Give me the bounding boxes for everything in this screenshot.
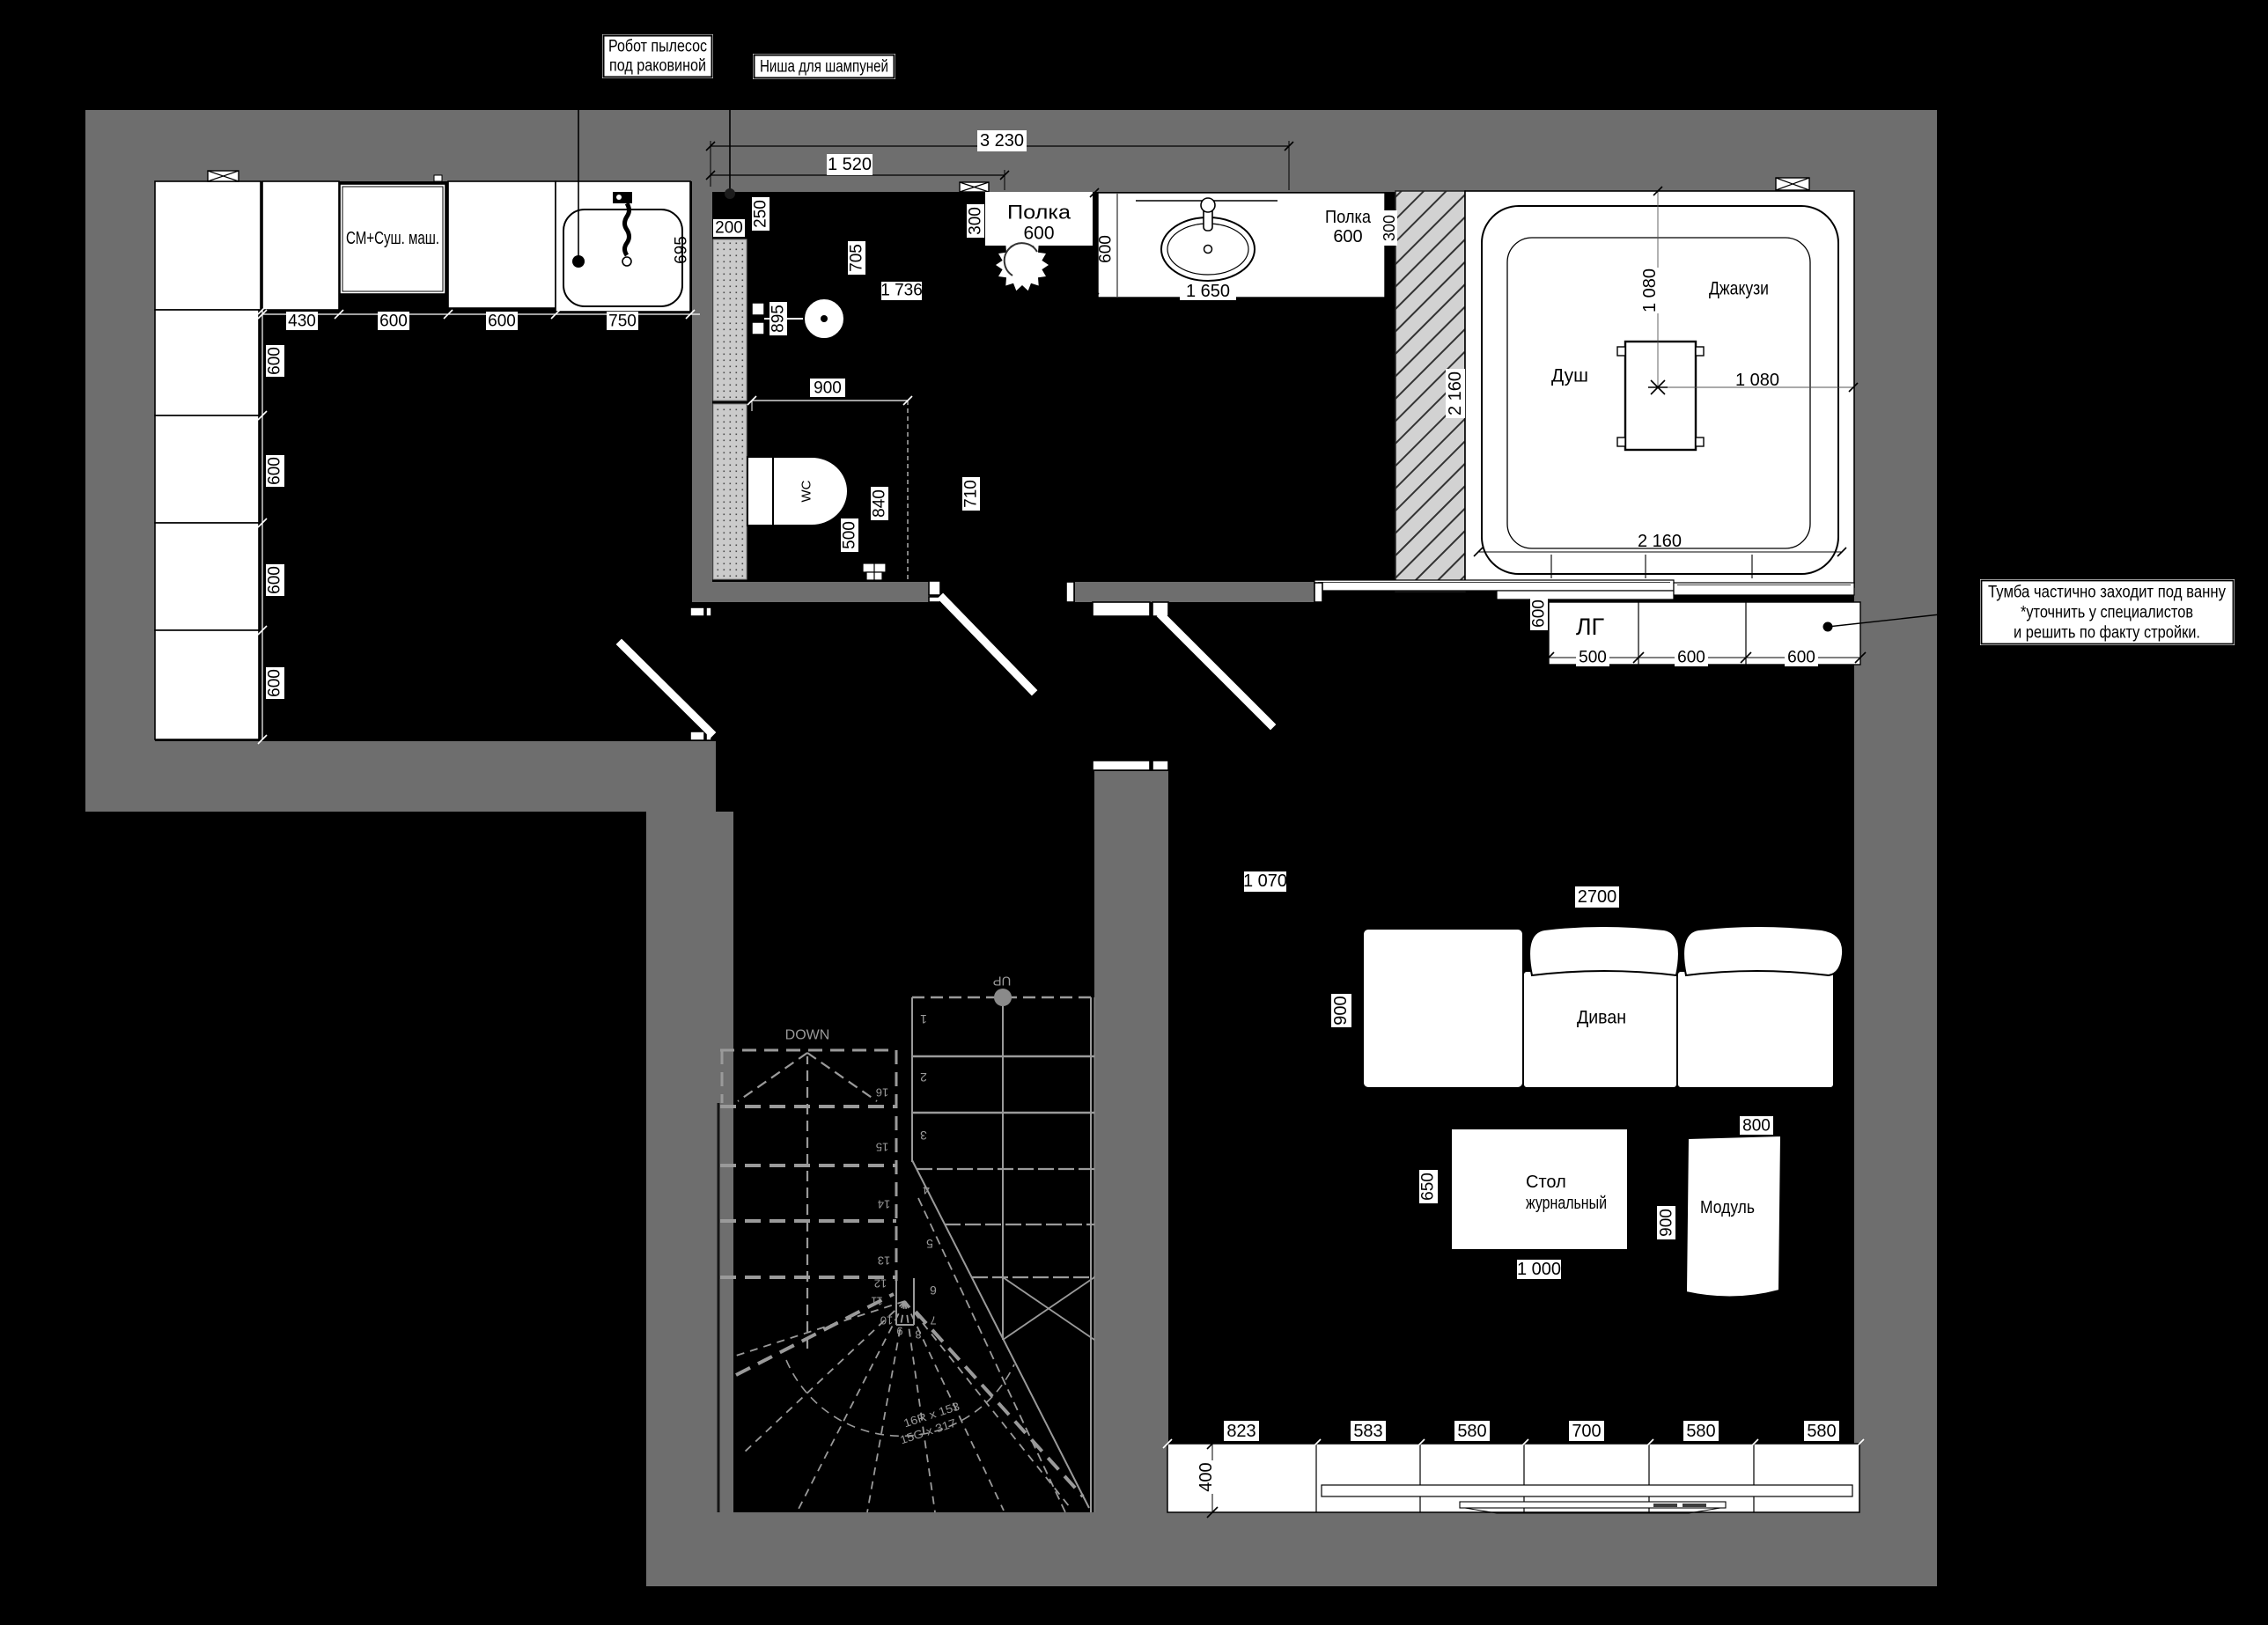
svg-text:13: 13 <box>878 1254 890 1268</box>
svg-text:16: 16 <box>876 1086 888 1099</box>
svg-text:8: 8 <box>915 1328 921 1342</box>
svg-text:895: 895 <box>769 305 788 333</box>
svg-text:430: 430 <box>288 312 316 331</box>
svg-text:650: 650 <box>1419 1173 1438 1201</box>
svg-text:300: 300 <box>1381 215 1398 241</box>
svg-text:500: 500 <box>841 521 859 549</box>
svg-text:1 650: 1 650 <box>1186 282 1230 301</box>
svg-text:Тумба частично заходит под ван: Тумба частично заходит под ванну <box>1988 584 2226 602</box>
svg-text:900: 900 <box>1331 996 1351 1025</box>
svg-text:4: 4 <box>923 1183 930 1197</box>
svg-text:3: 3 <box>920 1129 927 1143</box>
svg-text:600: 600 <box>1097 235 1116 263</box>
svg-text:600: 600 <box>266 566 284 594</box>
svg-text:900: 900 <box>1658 1209 1676 1237</box>
svg-text:200: 200 <box>715 219 743 238</box>
svg-text:695: 695 <box>673 236 691 264</box>
svg-text:300: 300 <box>967 207 985 235</box>
svg-text:1: 1 <box>920 1012 927 1026</box>
svg-text:580: 580 <box>1457 1422 1486 1441</box>
svg-text:600: 600 <box>379 312 408 331</box>
svg-text:400: 400 <box>1197 1462 1216 1491</box>
svg-text:600: 600 <box>266 669 284 697</box>
svg-text:600: 600 <box>1787 649 1815 667</box>
svg-text:750: 750 <box>608 312 637 331</box>
svg-text:1 736: 1 736 <box>880 282 923 300</box>
svg-text:900: 900 <box>814 379 842 398</box>
svg-text:под раковиной: под раковиной <box>609 57 706 76</box>
svg-text:12: 12 <box>874 1277 887 1290</box>
svg-text:250: 250 <box>752 200 770 228</box>
svg-text:15: 15 <box>876 1141 888 1154</box>
svg-text:5: 5 <box>926 1237 933 1251</box>
svg-text:600: 600 <box>1333 227 1362 246</box>
svg-text:1 000: 1 000 <box>1517 1260 1561 1279</box>
svg-text:600: 600 <box>488 312 516 331</box>
svg-text:583: 583 <box>1353 1422 1382 1441</box>
svg-text:7: 7 <box>930 1314 936 1327</box>
svg-text:DOWN: DOWN <box>785 1028 830 1043</box>
svg-text:705: 705 <box>848 244 866 272</box>
svg-text:*уточнить у специалистов: *уточнить у специалистов <box>2021 604 2193 622</box>
svg-text:2700: 2700 <box>1578 887 1617 907</box>
svg-text:Робот пылесос: Робот пылесос <box>608 38 707 56</box>
svg-text:600: 600 <box>1677 649 1705 667</box>
svg-text:600: 600 <box>1530 599 1549 628</box>
svg-text:6: 6 <box>930 1283 937 1298</box>
svg-text:2: 2 <box>920 1070 927 1085</box>
svg-text:600: 600 <box>266 457 284 485</box>
svg-text:1 520: 1 520 <box>828 155 872 174</box>
svg-text:9: 9 <box>896 1325 902 1338</box>
svg-text:WC: WC <box>799 480 814 502</box>
svg-text:500: 500 <box>1579 649 1607 667</box>
svg-text:Душ: Душ <box>1551 366 1588 386</box>
svg-text:Ниша для шампуней: Ниша для шампуней <box>760 58 888 77</box>
svg-text:580: 580 <box>1686 1422 1715 1441</box>
svg-text:700: 700 <box>1572 1422 1601 1441</box>
svg-text:14: 14 <box>878 1198 890 1211</box>
svg-text:Модуль: Модуль <box>1700 1198 1755 1217</box>
svg-text:10: 10 <box>880 1314 893 1327</box>
svg-text:840: 840 <box>871 489 889 518</box>
svg-text:Диван: Диван <box>1577 1008 1626 1028</box>
svg-text:2 160: 2 160 <box>1446 371 1465 415</box>
svg-text:и решить по факту стройки.: и решить по факту стройки. <box>2014 624 2200 643</box>
svg-text:11: 11 <box>871 1295 883 1308</box>
svg-text:600: 600 <box>266 347 284 375</box>
svg-text:823: 823 <box>1226 1422 1255 1441</box>
svg-text:журнальный: журнальный <box>1526 1194 1607 1213</box>
svg-text:1 080: 1 080 <box>1640 268 1660 312</box>
svg-text:Джакузи: Джакузи <box>1709 279 1769 299</box>
svg-text:2 160: 2 160 <box>1638 532 1682 551</box>
svg-text:3 230: 3 230 <box>980 131 1024 151</box>
svg-text:1 070: 1 070 <box>1243 871 1287 891</box>
svg-text:Полка: Полка <box>1007 202 1071 224</box>
svg-text:СМ+Суш. маш.: СМ+Суш. маш. <box>346 229 439 248</box>
svg-text:710: 710 <box>962 480 981 508</box>
svg-text:800: 800 <box>1742 1117 1771 1136</box>
svg-text:580: 580 <box>1807 1422 1836 1441</box>
svg-text:Стол: Стол <box>1526 1173 1566 1192</box>
svg-text:1 080: 1 080 <box>1735 371 1779 390</box>
svg-text:UP: UP <box>993 974 1012 989</box>
svg-text:ЛГ: ЛГ <box>1576 614 1605 640</box>
svg-text:Полка: Полка <box>1325 208 1372 227</box>
